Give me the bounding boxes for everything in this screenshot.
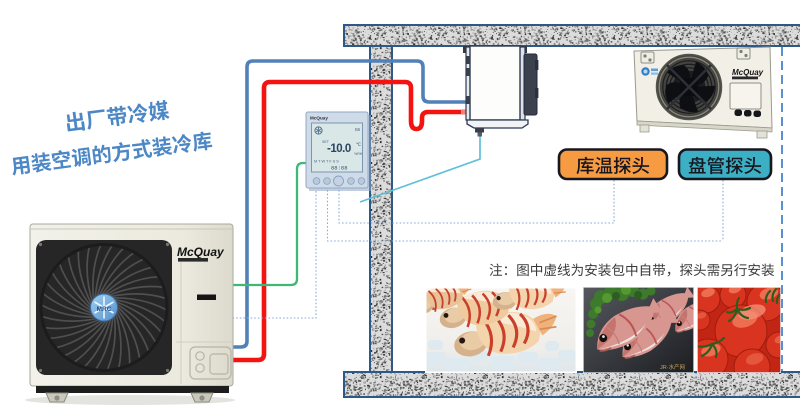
svg-text:88:88: 88:88 xyxy=(331,165,348,172)
svg-text:McQuay: McQuay xyxy=(732,68,764,77)
svg-text:McQuay: McQuay xyxy=(177,245,225,259)
svg-text:-10.0: -10.0 xyxy=(327,143,351,155)
svg-text:McQuay: McQuay xyxy=(310,116,328,121)
svg-text:%RH: %RH xyxy=(354,152,363,156)
svg-text:B6: B6 xyxy=(355,127,361,132)
svg-text:M T W T F S S: M T W T F S S xyxy=(314,160,339,164)
svg-text:JR·水产网: JR·水产网 xyxy=(660,363,686,371)
svg-text:SET: SET xyxy=(322,140,330,144)
svg-text:MRC: MRC xyxy=(97,306,112,313)
